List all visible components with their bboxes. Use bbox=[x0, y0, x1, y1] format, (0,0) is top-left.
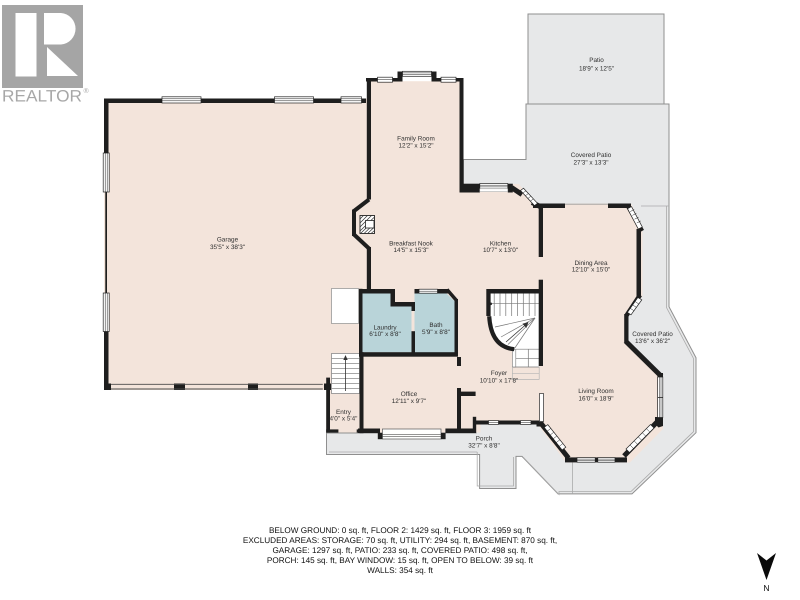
svg-text:Covered Patio: Covered Patio bbox=[571, 152, 612, 159]
svg-text:35'5" x 38'3": 35'5" x 38'3" bbox=[210, 244, 245, 251]
svg-text:14'5" x 15'3": 14'5" x 15'3" bbox=[393, 247, 428, 254]
svg-text:GARAGE: 1297 sq. ft, PATIO: 23: GARAGE: 1297 sq. ft, PATIO: 233 sq. ft, … bbox=[272, 546, 527, 555]
svg-text:16'0" x 18'9": 16'0" x 18'9" bbox=[578, 396, 613, 403]
svg-text:6'10" x 8'8": 6'10" x 8'8" bbox=[369, 331, 401, 338]
svg-text:10'10" x 17'8": 10'10" x 17'8" bbox=[480, 377, 519, 384]
svg-text:®: ® bbox=[84, 88, 90, 95]
svg-text:13'6" x 36'2": 13'6" x 36'2" bbox=[635, 338, 670, 345]
svg-text:32'7" x 8'8": 32'7" x 8'8" bbox=[468, 443, 500, 450]
svg-text:Foyer: Foyer bbox=[491, 370, 508, 377]
svg-text:EXCLUDED AREAS: STORAGE: 70 sq: EXCLUDED AREAS: STORAGE: 70 sq. ft, UTIL… bbox=[243, 536, 557, 545]
svg-text:10'7" x 13'0": 10'7" x 13'0" bbox=[483, 247, 518, 254]
svg-text:PORCH: 145 sq. ft, BAY WINDOW:: PORCH: 145 sq. ft, BAY WINDOW: 15 sq. ft… bbox=[267, 556, 534, 565]
svg-text:Bath: Bath bbox=[429, 322, 443, 329]
svg-text:12'11" x 9'7": 12'11" x 9'7" bbox=[392, 398, 427, 405]
svg-text:Living Room: Living Room bbox=[578, 388, 614, 395]
svg-text:Patio: Patio bbox=[589, 57, 604, 64]
svg-text:Covered Patio: Covered Patio bbox=[632, 331, 673, 338]
svg-text:Garage: Garage bbox=[217, 237, 239, 244]
svg-text:BELOW GROUND: 0 sq. ft, FLOOR: BELOW GROUND: 0 sq. ft, FLOOR 2: 1429 sq… bbox=[269, 526, 532, 535]
svg-text:Porch: Porch bbox=[476, 436, 493, 443]
svg-text:12'2" x 15'2": 12'2" x 15'2" bbox=[398, 142, 433, 149]
svg-text:REALTOR: REALTOR bbox=[2, 88, 82, 106]
svg-text:27'3" x 13'3": 27'3" x 13'3" bbox=[573, 160, 608, 167]
svg-text:12'10" x 15'0": 12'10" x 15'0" bbox=[572, 267, 611, 274]
svg-text:4'0" x 5'4": 4'0" x 5'4" bbox=[330, 415, 358, 422]
svg-text:5'9" x 8'8": 5'9" x 8'8" bbox=[422, 329, 450, 336]
svg-text:WALLS: 354 sq. ft: WALLS: 354 sq. ft bbox=[367, 566, 433, 575]
svg-text:18'9" x 12'5": 18'9" x 12'5" bbox=[579, 66, 614, 73]
svg-text:N: N bbox=[763, 583, 769, 593]
